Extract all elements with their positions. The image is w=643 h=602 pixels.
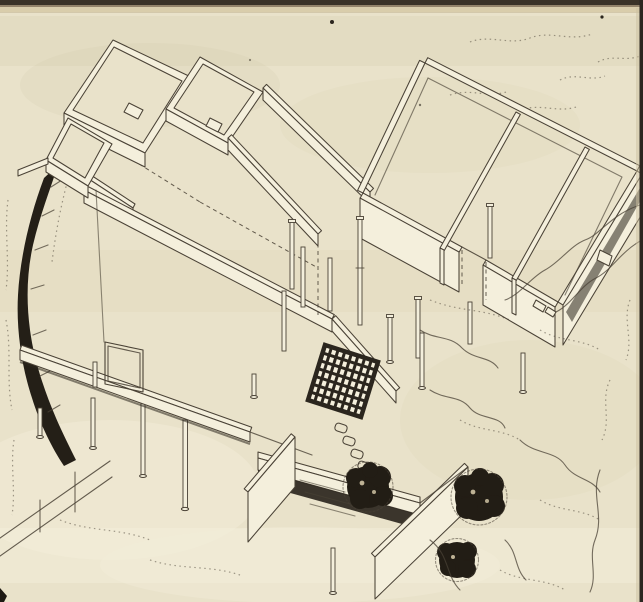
tree-canopy xyxy=(451,468,507,525)
axonometric-drawing xyxy=(0,0,643,602)
top-frame-bar xyxy=(0,0,643,5)
tree-canopy xyxy=(436,539,479,582)
right-edge-shadow xyxy=(640,0,643,602)
scanned-page xyxy=(0,0,643,602)
